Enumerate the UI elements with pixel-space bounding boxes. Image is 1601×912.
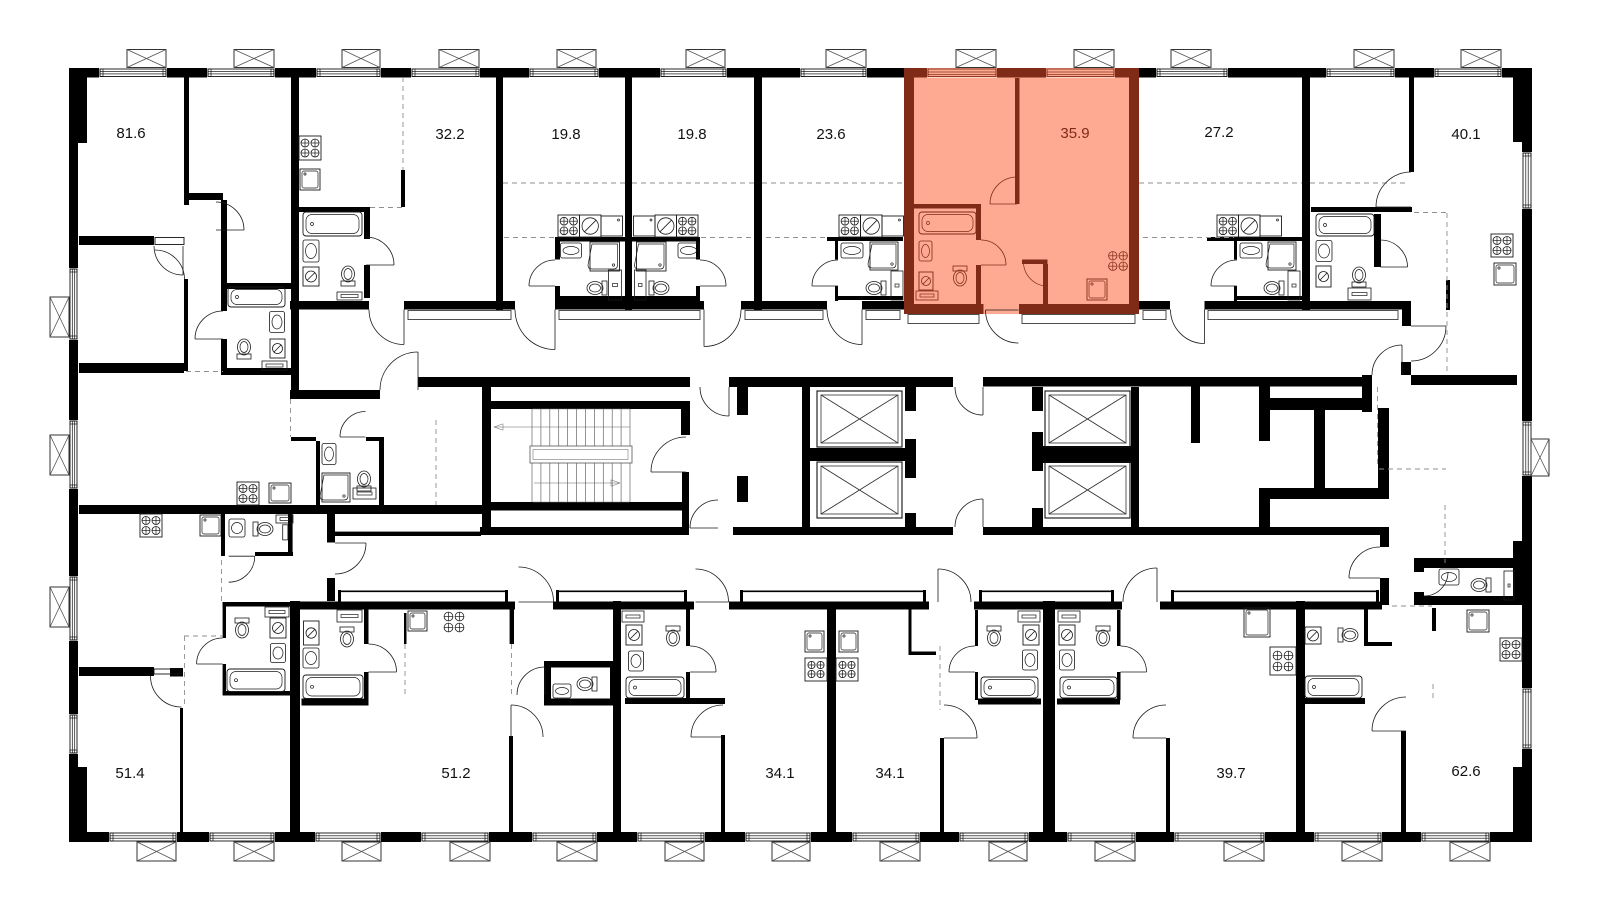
svg-text:81.6: 81.6 bbox=[116, 125, 145, 142]
svg-text:62.6: 62.6 bbox=[1451, 763, 1480, 780]
svg-text:23.6: 23.6 bbox=[816, 126, 845, 143]
svg-text:19.8: 19.8 bbox=[551, 126, 580, 143]
svg-text:40.1: 40.1 bbox=[1451, 126, 1480, 143]
svg-text:34.1: 34.1 bbox=[765, 765, 794, 782]
svg-text:19.8: 19.8 bbox=[677, 126, 706, 143]
svg-text:35.9: 35.9 bbox=[1060, 125, 1089, 142]
svg-text:51.4: 51.4 bbox=[115, 765, 144, 782]
svg-text:32.2: 32.2 bbox=[435, 126, 464, 143]
svg-text:39.7: 39.7 bbox=[1216, 765, 1245, 782]
svg-text:51.2: 51.2 bbox=[441, 765, 470, 782]
svg-text:27.2: 27.2 bbox=[1204, 124, 1233, 141]
svg-text:34.1: 34.1 bbox=[875, 765, 904, 782]
